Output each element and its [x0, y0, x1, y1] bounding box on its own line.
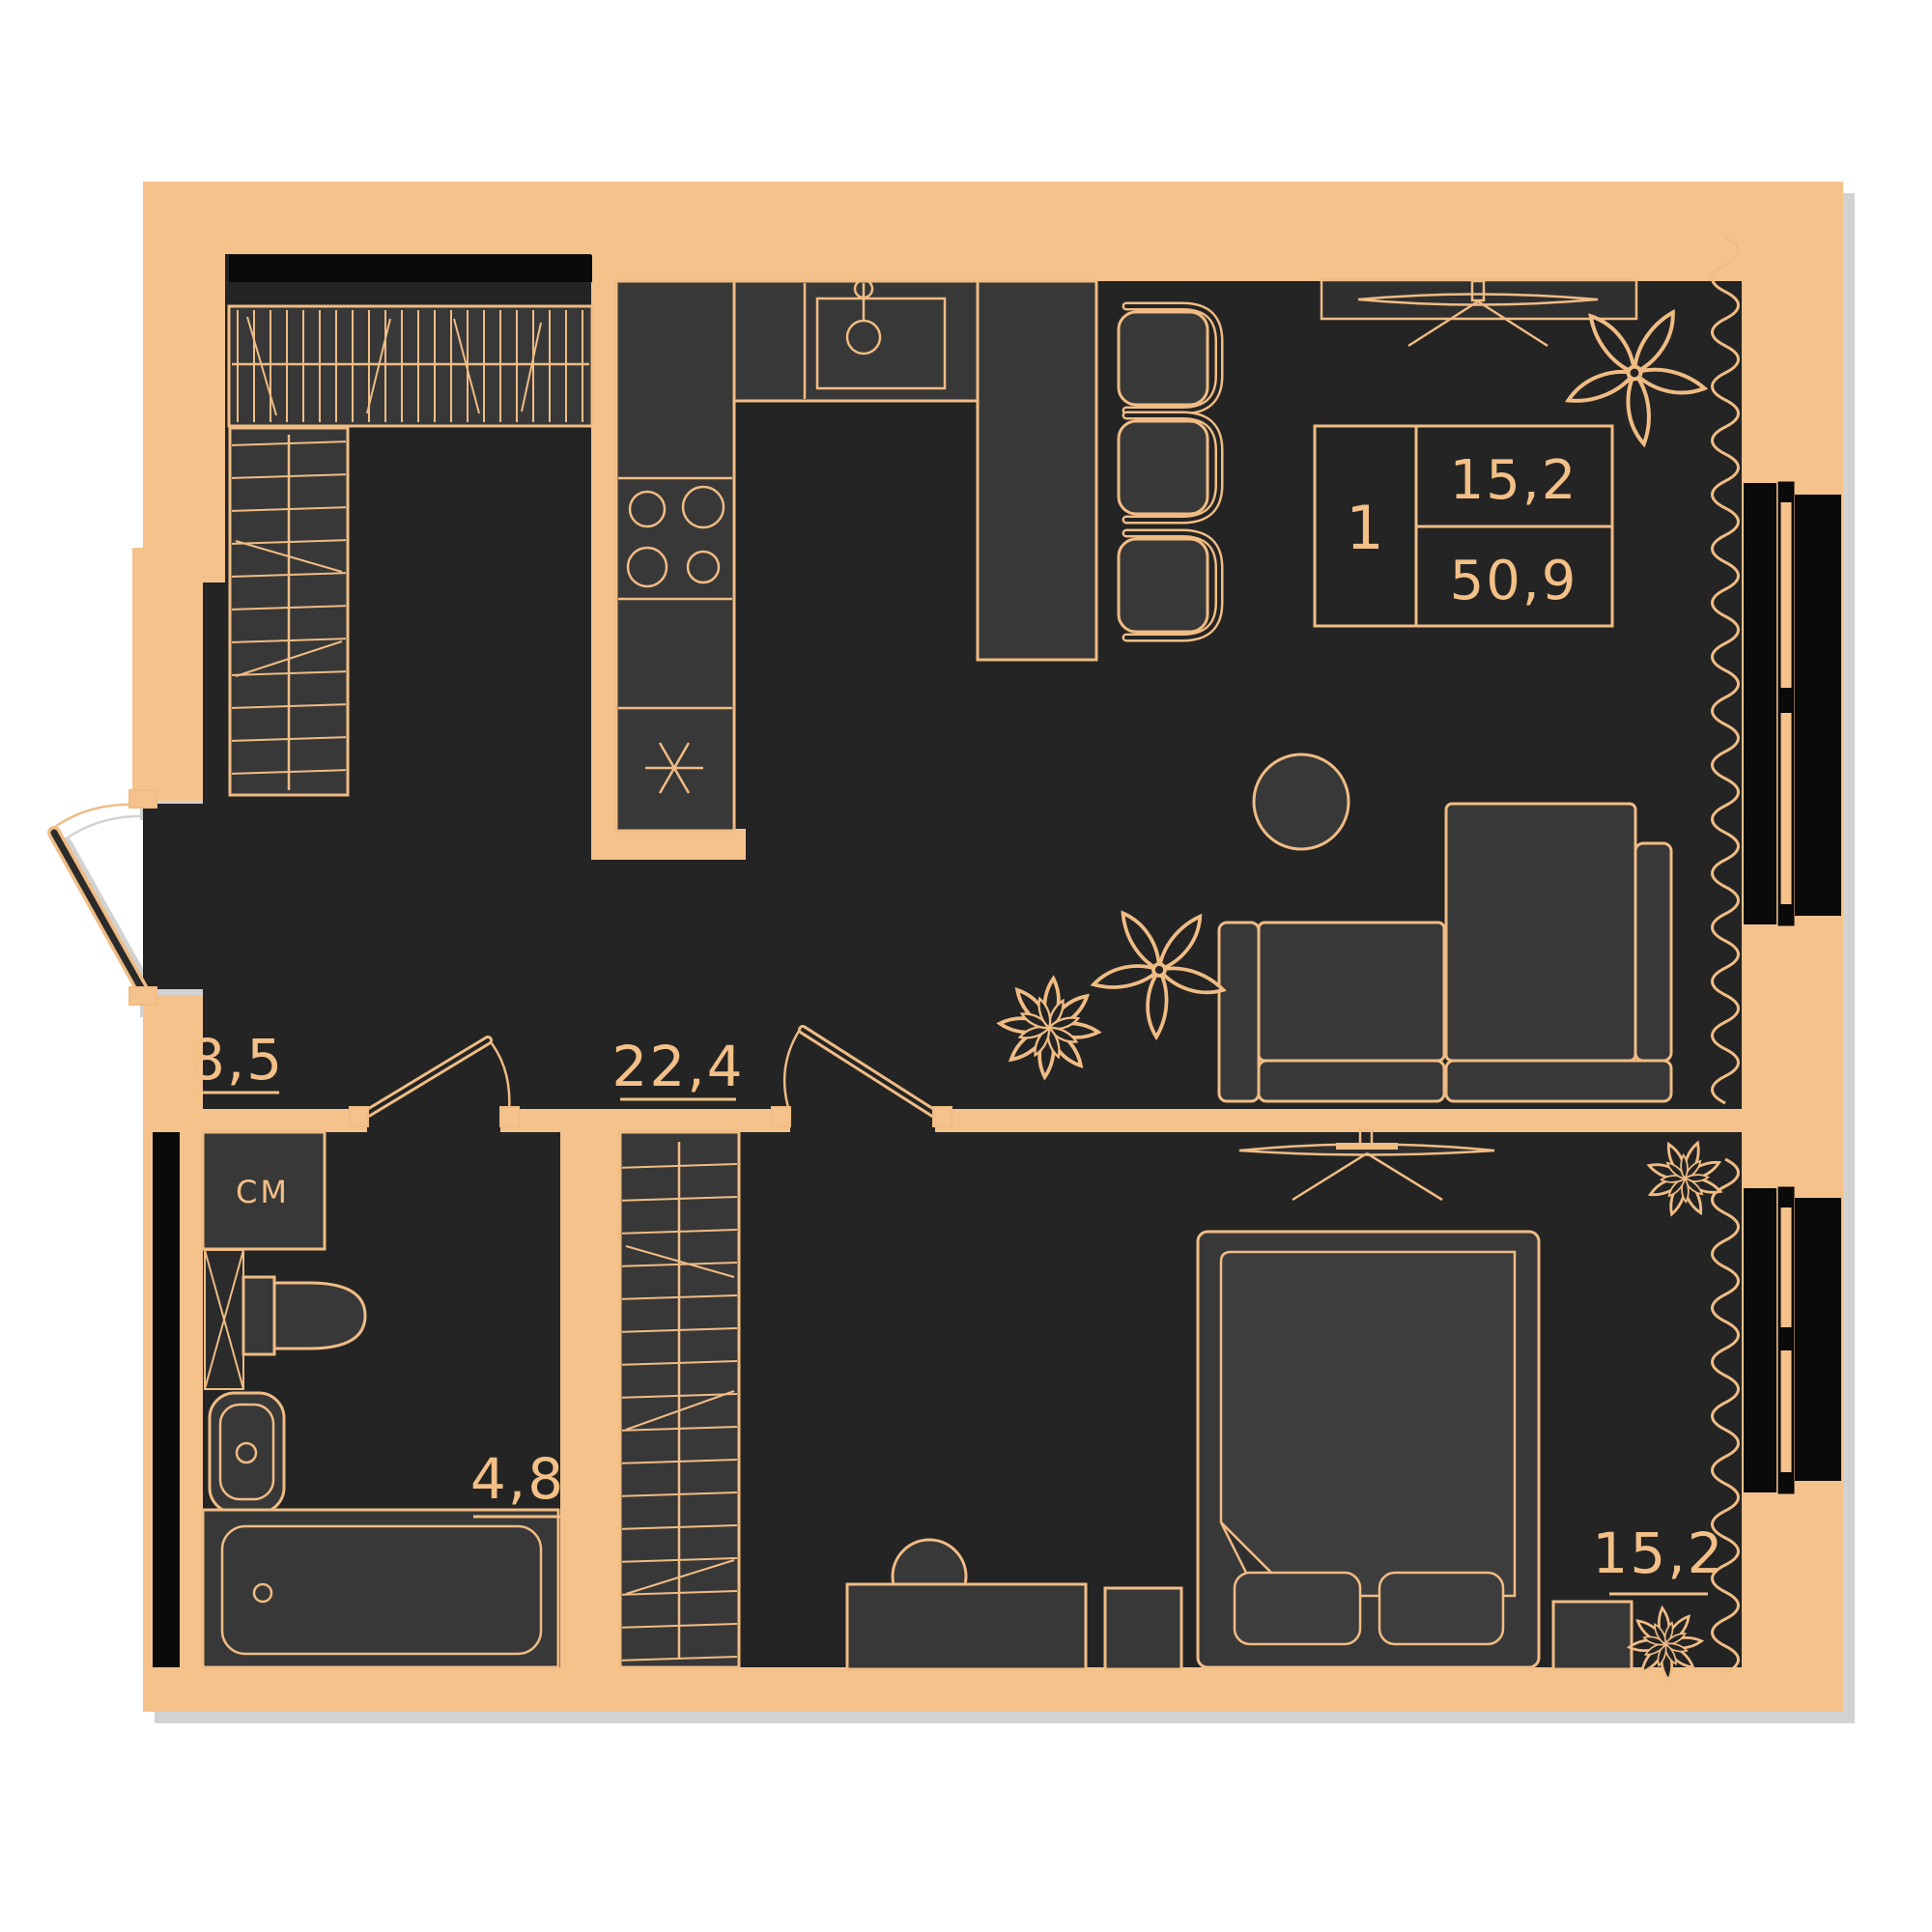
room-area-value: 4,8	[470, 1446, 565, 1512]
window-sill	[1744, 483, 1776, 924]
door-stop	[129, 790, 156, 808]
info-rooms: 1	[1346, 493, 1383, 563]
nightstand	[1105, 1588, 1181, 1669]
pillow	[1379, 1573, 1503, 1644]
closet-top-panel	[229, 255, 592, 282]
bedroom-door-opening	[790, 1109, 935, 1132]
bathroom-door-opening	[367, 1109, 500, 1132]
window-outer	[1795, 495, 1841, 916]
window-bedroom	[1744, 1188, 1841, 1492]
wardrobe-hangers	[229, 306, 592, 426]
door-stop	[350, 1107, 368, 1126]
window-mullion	[1778, 1327, 1794, 1350]
window-mullion	[1778, 904, 1794, 924]
coffee-table	[1254, 754, 1349, 849]
wall-bottom	[143, 1667, 1843, 1712]
entrance-door	[52, 790, 156, 1005]
window-living	[1744, 483, 1841, 924]
wall-top-inner	[591, 254, 1742, 281]
bar-chair	[1119, 306, 1219, 411]
toilet-icon	[243, 1277, 365, 1354]
wall-top	[143, 182, 1843, 254]
desk	[847, 1584, 1086, 1669]
room-area-value: 8,5	[189, 1027, 284, 1093]
window-mullion	[1778, 1188, 1794, 1207]
door-stop	[129, 987, 156, 1005]
room-label-hallway: 8,5	[189, 1027, 284, 1093]
window-outer	[1795, 1198, 1841, 1481]
wall-kitchen-stub	[591, 829, 746, 860]
wardrobe-shelves	[230, 428, 348, 795]
bathroom-sink-icon	[210, 1393, 284, 1513]
room-area-value: 22,4	[611, 1034, 744, 1099]
wall-kitchen	[591, 254, 618, 831]
riser-shaft-icon	[205, 1250, 243, 1389]
room-label-kitchen-living: 22,4	[611, 1034, 744, 1099]
bar-chair	[1119, 415, 1219, 520]
pillow	[1235, 1573, 1360, 1644]
floor-plan-page: 1 15,2 50,9 СМ	[0, 0, 1932, 1932]
bathtub	[203, 1510, 558, 1667]
door-stop	[772, 1107, 790, 1126]
door-stop	[933, 1107, 952, 1126]
wall-left-jog	[132, 548, 203, 801]
window-mullion	[1778, 483, 1794, 502]
info-total-area: 50,9	[1450, 550, 1578, 612]
entrance-opening	[143, 804, 203, 989]
floor-plan[interactable]: 1 15,2 50,9 СМ	[0, 0, 1932, 1932]
wall-left-upper	[143, 182, 225, 582]
bar-chair	[1119, 533, 1219, 638]
shaft-strip	[153, 1132, 180, 1667]
bed	[1198, 1232, 1539, 1667]
room-label-bedroom: 15,2	[1592, 1520, 1724, 1594]
room-area-value: 15,2	[1592, 1520, 1724, 1586]
window-mullion	[1778, 1472, 1794, 1492]
washing-machine-label: СМ	[236, 1174, 290, 1210]
room-label-bathroom: 4,8	[470, 1446, 565, 1517]
bedroom-wardrobe	[620, 1132, 739, 1667]
window-sill	[1744, 1188, 1776, 1492]
bar-counter	[978, 281, 1096, 660]
nightstand	[1553, 1602, 1632, 1669]
window-mullion	[1778, 688, 1794, 713]
door-stop	[500, 1107, 519, 1126]
wall-bathroom-right	[560, 1132, 620, 1667]
info-living-area: 15,2	[1450, 449, 1578, 512]
washing-machine: СМ	[203, 1132, 325, 1249]
